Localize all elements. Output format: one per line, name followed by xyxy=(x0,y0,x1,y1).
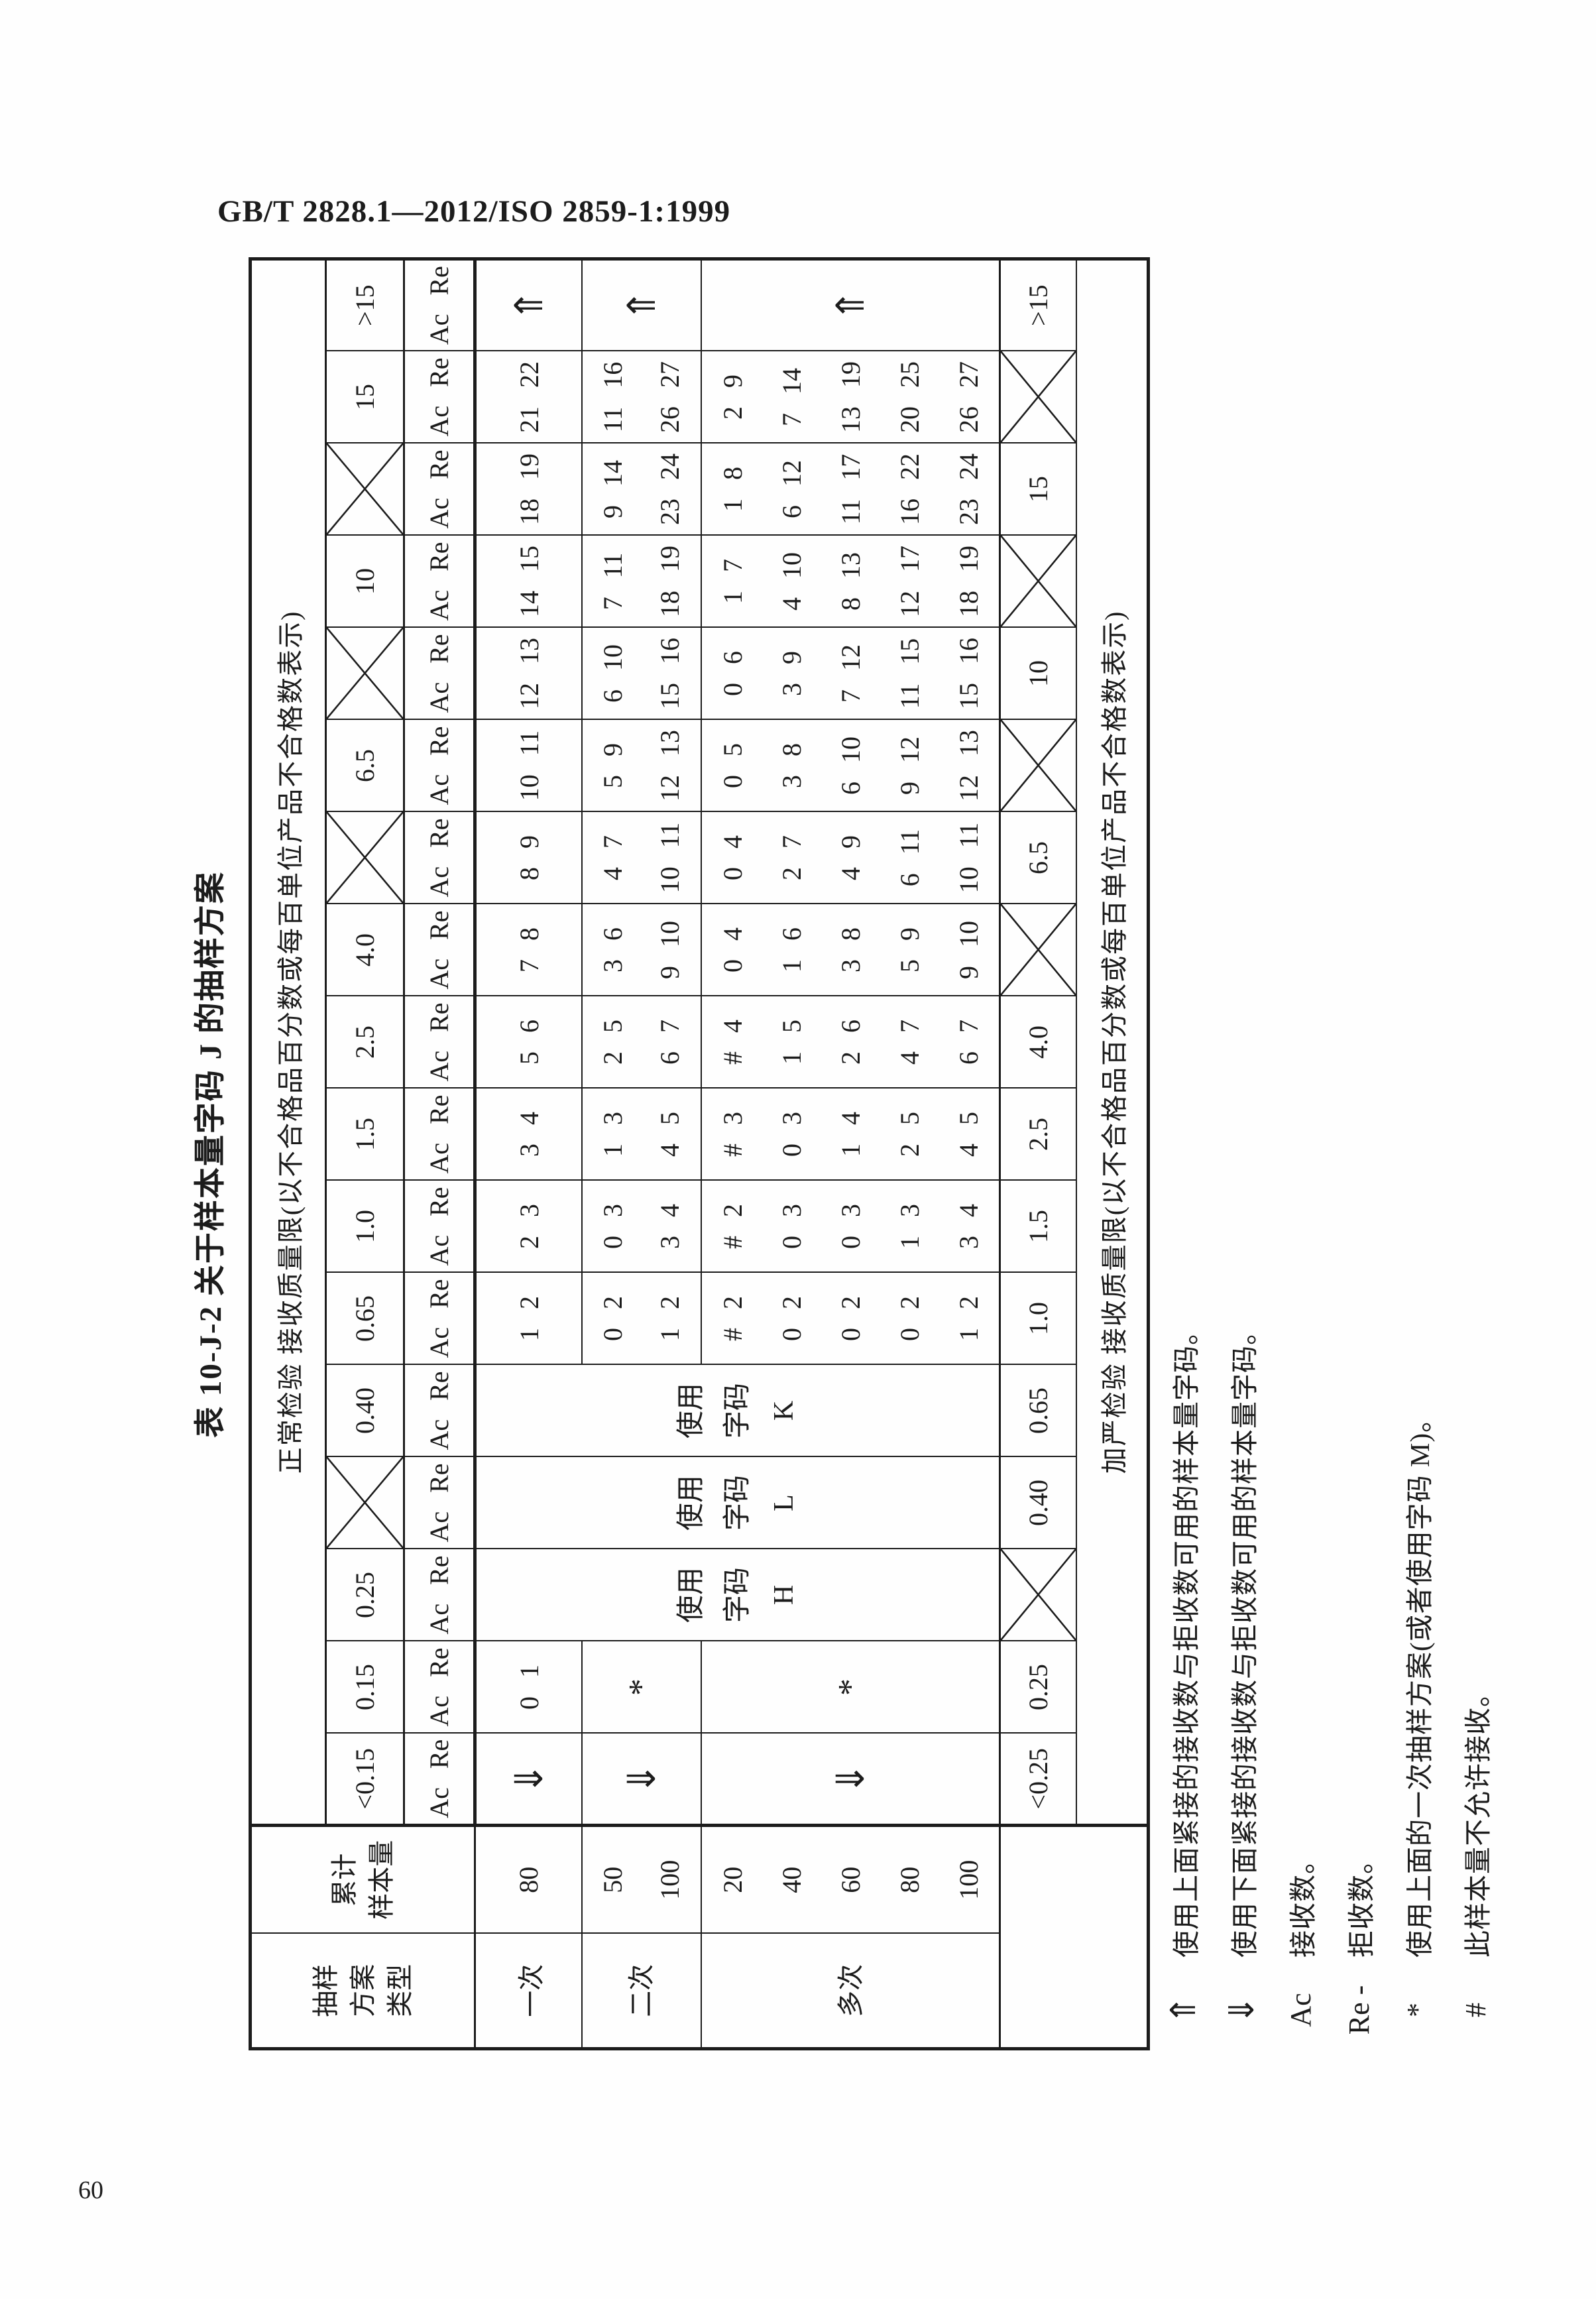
multiple-plan-cell: 0 6 3 9 7 12 11 15 15 16 xyxy=(701,628,1000,720)
double-plan-cell: 7 11 18 19 xyxy=(582,536,701,628)
crossed-out-icon xyxy=(327,813,403,904)
ac-re-label: Ac Re xyxy=(404,904,475,996)
ac-re-label: Ac Re xyxy=(404,1273,475,1365)
double-plan-cell: 2 5 6 7 xyxy=(582,996,701,1089)
multiple-plan-cell: 0 4 2 7 4 9 6 11 10 11 xyxy=(701,812,1000,904)
single-plan-cell: 7 8 xyxy=(475,904,583,996)
tightened-aql-label: 10 xyxy=(1000,628,1077,720)
footnote-symbol: * xyxy=(1400,1980,1434,2040)
footnote: Re -拒收数。 xyxy=(1330,283,1388,2040)
double-plan-cell: 9 14 23 24 xyxy=(582,443,701,536)
crossed-out-icon xyxy=(1001,1550,1076,1641)
ac-re-label: Ac Re xyxy=(404,1365,475,1457)
normal-aql-label-row: <0.150.150.250.400.651.01.52.54.06.51015… xyxy=(326,259,404,2048)
double-plan-cell: 0 3 3 4 xyxy=(582,1181,701,1273)
tightened-aql-label: 6.5 xyxy=(1000,812,1077,904)
normal-inspection-header: 正常检验 接收质量限(以不合格品百分数或每百单位产品不合格数表示) xyxy=(251,259,326,1825)
tightened-aql-label: 1.0 xyxy=(1000,1273,1077,1365)
double-plan-cell: ⇓ xyxy=(582,1734,701,1826)
multiple-plan-cell: * xyxy=(701,1641,1000,1734)
tightened-aql-label: 4.0 xyxy=(1000,996,1077,1089)
footnote: #此样本量不允许接收。 xyxy=(1446,283,1505,2040)
normal-aql-label: <0.15 xyxy=(326,1734,404,1826)
crossed-out-icon xyxy=(1001,352,1076,443)
ac-re-label: Ac Re xyxy=(404,996,475,1089)
tightened-aql-label: >15 xyxy=(1000,259,1077,351)
footnote: Ac接收数。 xyxy=(1271,283,1330,2040)
tightened-inspection-header: 加严检验 接收质量限(以不合格品百分数或每百单位产品不合格数表示) xyxy=(1076,259,1149,1825)
normal-header-row: 抽样 方案 类型 累计 样本量 正常检验 接收质量限(以不合格品百分数或每百单位… xyxy=(251,259,326,2048)
use-code-note-cell: 使用 字码 K xyxy=(475,1365,1000,1457)
normal-aql-label: 0.40 xyxy=(326,1365,404,1457)
scanned-page: GB/T 2828.1—2012/ISO 2859-1:1999 表 10-J-… xyxy=(0,0,1596,2299)
tightened-aql-label xyxy=(1000,904,1077,996)
footnote: *使用上面的一次抽样方案(或者使用字码 M)。 xyxy=(1388,283,1446,2040)
tightened-aql-label xyxy=(1000,1549,1077,1641)
crossed-out-icon xyxy=(1001,536,1076,627)
double-plan-cell: 11 16 26 27 xyxy=(582,351,701,443)
normal-aql-label: 2.5 xyxy=(326,996,404,1089)
single-plan-cell: 21 22 xyxy=(475,351,583,443)
normal-aql-label: 10 xyxy=(326,536,404,628)
cumulative-size-single: 80 xyxy=(475,1826,583,1934)
single-plan-cell: 5 6 xyxy=(475,996,583,1089)
normal-aql-label: >15 xyxy=(326,259,404,351)
cumulative-size-double: 50 100 xyxy=(582,1826,701,1934)
table-title: 表 10-J-2 关于样本量字码 J 的抽样方案 xyxy=(184,257,230,2052)
tightened-aql-label xyxy=(1000,536,1077,628)
ac-re-header-row: Ac ReAc ReAc ReAc ReAc ReAc ReAc ReAc Re… xyxy=(404,259,475,2048)
multiple-plan-cell: 0 4 1 6 3 8 5 9 9 10 xyxy=(701,904,1000,996)
standard-number-header: GB/T 2828.1—2012/ISO 2859-1:1999 xyxy=(217,194,730,229)
plan-type-double: 二次 xyxy=(582,1934,701,2049)
single-plan-cell: 8 9 xyxy=(475,812,583,904)
single-plan-cell: 10 11 xyxy=(475,720,583,812)
double-sampling-row: 二次 50 100 ⇓*0 2 1 20 3 3 41 3 4 52 5 6 7… xyxy=(582,259,701,2048)
crossed-out-icon xyxy=(327,1458,403,1549)
double-plan-cell: * xyxy=(582,1641,701,1734)
cumulative-size-multiple: 20 40 60 80 100 xyxy=(701,1826,1000,1934)
double-plan-cell: 4 7 10 11 xyxy=(582,812,701,904)
normal-aql-label: 0.65 xyxy=(326,1273,404,1365)
footnote-text: 拒收数。 xyxy=(1339,1846,1379,1958)
double-plan-cell: 0 2 1 2 xyxy=(582,1273,701,1365)
plan-type-column-header: 抽样 方案 类型 xyxy=(251,1934,475,2049)
multiple-plan-cell: 2 9 7 14 13 19 20 25 26 27 xyxy=(701,351,1000,443)
double-plan-cell: 3 6 9 10 xyxy=(582,904,701,996)
ac-re-label: Ac Re xyxy=(404,1734,475,1826)
normal-aql-label xyxy=(326,1457,404,1549)
crossed-out-icon xyxy=(1001,905,1076,996)
tightened-aql-label: 0.25 xyxy=(1000,1641,1077,1734)
normal-aql-label: 0.25 xyxy=(326,1549,404,1641)
normal-aql-label: 4.0 xyxy=(326,904,404,996)
multiple-plan-cell: 0 5 3 8 6 10 9 12 12 13 xyxy=(701,720,1000,812)
footnote-symbol: ⇓ xyxy=(1222,1980,1262,2040)
single-plan-cell: 14 15 xyxy=(475,536,583,628)
single-plan-cell: 12 13 xyxy=(475,628,583,720)
single-plan-cell: ⇑ xyxy=(475,259,583,351)
footnote-symbol: # xyxy=(1459,1980,1493,2040)
normal-aql-label: 6.5 xyxy=(326,720,404,812)
single-plan-cell: 1 2 xyxy=(475,1273,583,1365)
plan-type-single: 一次 xyxy=(475,1934,583,2049)
multiple-plan-cell: ⇑ xyxy=(701,259,1000,351)
footnote-text: 使用上面紧接的接收数与拒收数可用的样本量字码。 xyxy=(1164,1317,1204,1958)
ac-re-label: Ac Re xyxy=(404,812,475,904)
footnote-symbol: ⇑ xyxy=(1164,1980,1204,2040)
crossed-out-icon xyxy=(327,628,403,719)
ac-re-label: Ac Re xyxy=(404,1549,475,1641)
multiple-plan-cell: 1 7 4 10 8 13 12 17 18 19 xyxy=(701,536,1000,628)
multiple-plan-cell: ⇓ xyxy=(701,1734,1000,1826)
multiple-plan-cell: # 2 0 3 0 3 1 3 3 4 xyxy=(701,1181,1000,1273)
multiple-plan-cell: # 4 1 5 2 6 4 7 6 7 xyxy=(701,996,1000,1089)
multiple-plan-cell: # 2 0 2 0 2 0 2 1 2 xyxy=(701,1273,1000,1365)
footnote-text: 接收数。 xyxy=(1281,1846,1320,1958)
multiple-plan-cell: # 3 0 3 1 4 2 5 4 5 xyxy=(701,1089,1000,1181)
logical-table-layout: 表 10-J-2 关于样本量字码 J 的抽样方案 抽样 方案 类型 累计 样本量… xyxy=(166,257,1505,2052)
use-code-note-cell: 使用 字码 L xyxy=(475,1457,1000,1549)
normal-aql-label: 0.15 xyxy=(326,1641,404,1734)
multiple-sampling-row: 多次 20 40 60 80 100 ⇓*# 2 0 2 0 2 0 2 1 2… xyxy=(701,259,1000,2048)
footnote: ⇓使用下面紧接的接收数与拒收数可用的样本量字码。 xyxy=(1213,283,1271,2040)
cumulative-size-column-header: 累计 样本量 xyxy=(251,1826,475,1934)
tightened-aql-label: 2.5 xyxy=(1000,1089,1077,1181)
ac-re-label: Ac Re xyxy=(404,1089,475,1181)
footnote-text: 使用上面的一次抽样方案(或者使用字码 M)。 xyxy=(1397,1405,1437,1958)
footnote-symbol: Re - xyxy=(1342,1980,1376,2040)
tightened-aql-label: 0.40 xyxy=(1000,1457,1077,1549)
footnote-list: ⇑使用上面紧接的接收数与拒收数可用的样本量字码。⇓使用下面紧接的接收数与拒收数可… xyxy=(1155,283,1505,2040)
ac-re-label: Ac Re xyxy=(404,720,475,812)
ac-re-label: Ac Re xyxy=(404,628,475,720)
footnote-text: 使用下面紧接的接收数与拒收数可用的样本量字码。 xyxy=(1222,1317,1262,1958)
ac-re-label: Ac Re xyxy=(404,259,475,351)
tightened-aql-label xyxy=(1000,720,1077,812)
ac-re-label: Ac Re xyxy=(404,351,475,443)
single-plan-cell: ⇓ xyxy=(475,1734,583,1826)
footnote-symbol: Ac xyxy=(1284,1980,1318,2040)
double-plan-cell: 1 3 4 5 xyxy=(582,1089,701,1181)
crossed-out-icon xyxy=(1001,721,1076,811)
normal-aql-label: 1.0 xyxy=(326,1181,404,1273)
footnote: ⇑使用上面紧接的接收数与拒收数可用的样本量字码。 xyxy=(1155,283,1213,2040)
single-plan-cell: 3 4 xyxy=(475,1089,583,1181)
page-number: 60 xyxy=(78,2176,103,2205)
double-plan-cell: ⇑ xyxy=(582,259,701,351)
tightened-aql-label: 0.65 xyxy=(1000,1365,1077,1457)
single-plan-cell: 0 1 xyxy=(475,1641,583,1734)
tightened-header-row: 加严检验 接收质量限(以不合格品百分数或每百单位产品不合格数表示) xyxy=(1076,259,1149,2048)
normal-aql-label: 15 xyxy=(326,351,404,443)
single-plan-cell: 2 3 xyxy=(475,1181,583,1273)
plan-type-multiple: 多次 xyxy=(701,1934,1000,2049)
ac-re-label: Ac Re xyxy=(404,1181,475,1273)
tightened-aql-label: <0.25 xyxy=(1000,1734,1077,1826)
single-sampling-row: 一次 80 ⇓0 1使用 字码 H使用 字码 L使用 字码 K1 22 33 4… xyxy=(475,259,583,2048)
normal-aql-label xyxy=(326,628,404,720)
tightened-aql-label: 15 xyxy=(1000,443,1077,536)
ac-re-label: Ac Re xyxy=(404,1457,475,1549)
ac-re-label: Ac Re xyxy=(404,536,475,628)
use-code-note-cell: 使用 字码 H xyxy=(475,1549,1000,1641)
double-plan-cell: 6 10 15 16 xyxy=(582,628,701,720)
rotated-table-block: 表 10-J-2 关于样本量字码 J 的抽样方案 抽样 方案 类型 累计 样本量… xyxy=(166,257,1505,2052)
double-plan-cell: 5 9 12 13 xyxy=(582,720,701,812)
ac-re-label: Ac Re xyxy=(404,443,475,536)
tightened-aql-label: 1.5 xyxy=(1000,1181,1077,1273)
normal-aql-label xyxy=(326,812,404,904)
multiple-plan-cell: 1 8 6 12 11 17 16 22 23 24 xyxy=(701,443,1000,536)
tightened-aql-label xyxy=(1000,351,1077,443)
single-plan-cell: 18 19 xyxy=(475,443,583,536)
ac-re-label: Ac Re xyxy=(404,1641,475,1734)
empty-corner-cell xyxy=(1000,1826,1149,2049)
sampling-plans-table: 抽样 方案 类型 累计 样本量 正常检验 接收质量限(以不合格品百分数或每百单位… xyxy=(249,257,1150,2050)
footnote-text: 此样本量不允许接收。 xyxy=(1455,1679,1495,1958)
normal-aql-label: 1.5 xyxy=(326,1089,404,1181)
normal-aql-label xyxy=(326,443,404,536)
crossed-out-icon xyxy=(327,444,403,535)
tightened-aql-label-row: <0.250.250.400.651.01.52.54.06.51015>15 xyxy=(1000,259,1077,2048)
